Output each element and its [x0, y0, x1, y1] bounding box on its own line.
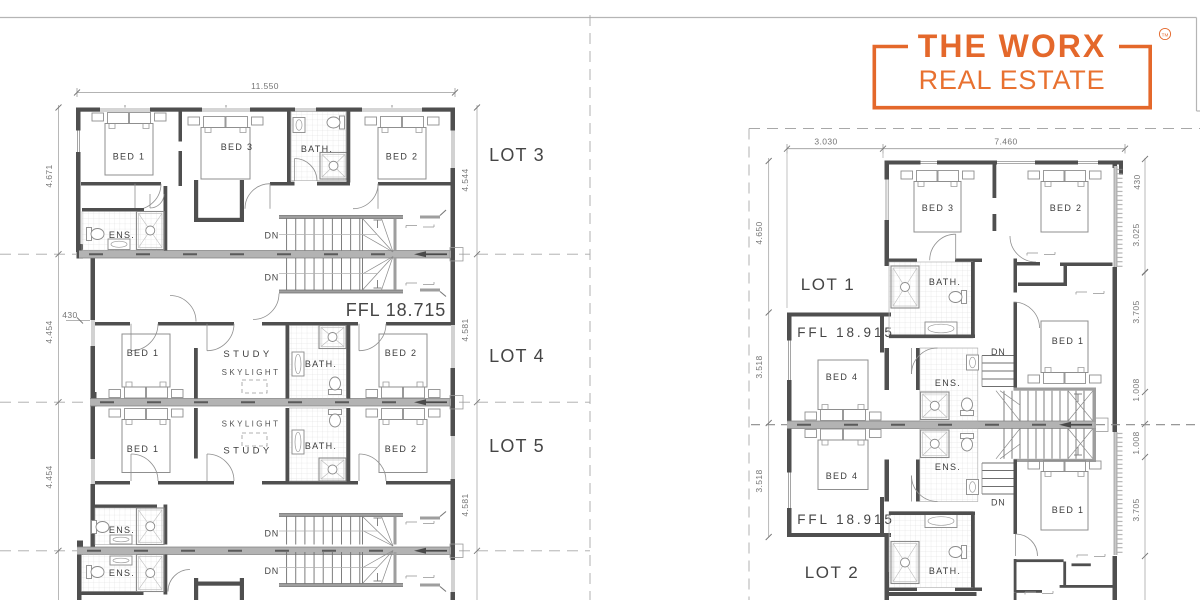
svg-text:3.518: 3.518 [754, 355, 764, 378]
svg-text:4.671: 4.671 [44, 164, 54, 187]
svg-text:BED 2: BED 2 [385, 444, 418, 454]
svg-text:BED 2: BED 2 [385, 348, 418, 358]
svg-text:ENS.: ENS. [109, 230, 135, 240]
svg-text:BED 3: BED 3 [221, 142, 254, 152]
svg-text:STUDY: STUDY [223, 349, 272, 360]
svg-text:3.030: 3.030 [814, 137, 837, 147]
svg-text:DN: DN [991, 498, 1006, 508]
svg-text:BED 1: BED 1 [1052, 505, 1085, 515]
svg-text:STUDY: STUDY [223, 446, 272, 457]
svg-text:BATH.: BATH. [305, 441, 337, 451]
svg-text:LOT 3: LOT 3 [489, 145, 545, 165]
svg-text:SKYLIGHT: SKYLIGHT [222, 368, 281, 377]
svg-text:BED 1: BED 1 [1052, 336, 1085, 346]
svg-text:BED 4: BED 4 [826, 471, 859, 481]
svg-text:BED 1: BED 1 [127, 444, 160, 454]
svg-text:ENS.: ENS. [935, 378, 961, 388]
svg-text:BED 4: BED 4 [826, 372, 859, 382]
svg-text:3.518: 3.518 [754, 469, 764, 492]
svg-text:LOT 1: LOT 1 [801, 275, 855, 294]
svg-text:SKYLIGHT: SKYLIGHT [222, 420, 281, 429]
svg-text:BED 1: BED 1 [113, 152, 146, 162]
svg-text:4.650: 4.650 [754, 221, 764, 244]
svg-text:BED 2: BED 2 [386, 152, 419, 162]
svg-text:3.705: 3.705 [1131, 498, 1141, 521]
svg-text:ENS.: ENS. [109, 525, 135, 535]
svg-text:THE WORX: THE WORX [918, 28, 1106, 64]
svg-text:FFL 18.715: FFL 18.715 [346, 300, 446, 320]
svg-text:LOT 2: LOT 2 [805, 563, 859, 582]
svg-text:1.008: 1.008 [1131, 431, 1141, 454]
svg-text:BATH.: BATH. [305, 359, 337, 369]
svg-text:REAL ESTATE: REAL ESTATE [919, 65, 1106, 95]
svg-text:4.454: 4.454 [44, 465, 54, 488]
svg-text:4.581: 4.581 [460, 318, 470, 341]
svg-text:BED 3: BED 3 [922, 203, 955, 213]
svg-text:DN: DN [265, 273, 280, 283]
svg-text:LOT 5: LOT 5 [489, 436, 545, 456]
svg-text:LOT 4: LOT 4 [489, 346, 545, 366]
svg-text:3.705: 3.705 [1131, 300, 1141, 323]
svg-text:BATH.: BATH. [929, 277, 961, 287]
svg-text:BED 1: BED 1 [127, 348, 160, 358]
svg-text:430: 430 [62, 310, 77, 320]
svg-text:DN: DN [265, 231, 280, 241]
svg-text:ENS.: ENS. [935, 462, 961, 472]
svg-text:7.460: 7.460 [994, 137, 1017, 147]
svg-text:DN: DN [991, 347, 1006, 357]
svg-text:1.008: 1.008 [1131, 378, 1141, 401]
svg-text:ENS.: ENS. [109, 568, 135, 578]
svg-text:DN: DN [265, 566, 280, 576]
svg-text:TM: TM [1162, 32, 1169, 37]
svg-text:4.544: 4.544 [460, 168, 470, 191]
svg-text:4.454: 4.454 [44, 320, 54, 343]
svg-text:11.550: 11.550 [251, 81, 279, 91]
svg-text:BATH.: BATH. [929, 566, 961, 576]
svg-text:BED 2: BED 2 [1050, 203, 1083, 213]
svg-text:DN: DN [265, 529, 280, 539]
svg-text:430: 430 [1132, 174, 1142, 189]
svg-text:3.025: 3.025 [1131, 223, 1141, 246]
svg-text:4.581: 4.581 [460, 493, 470, 516]
